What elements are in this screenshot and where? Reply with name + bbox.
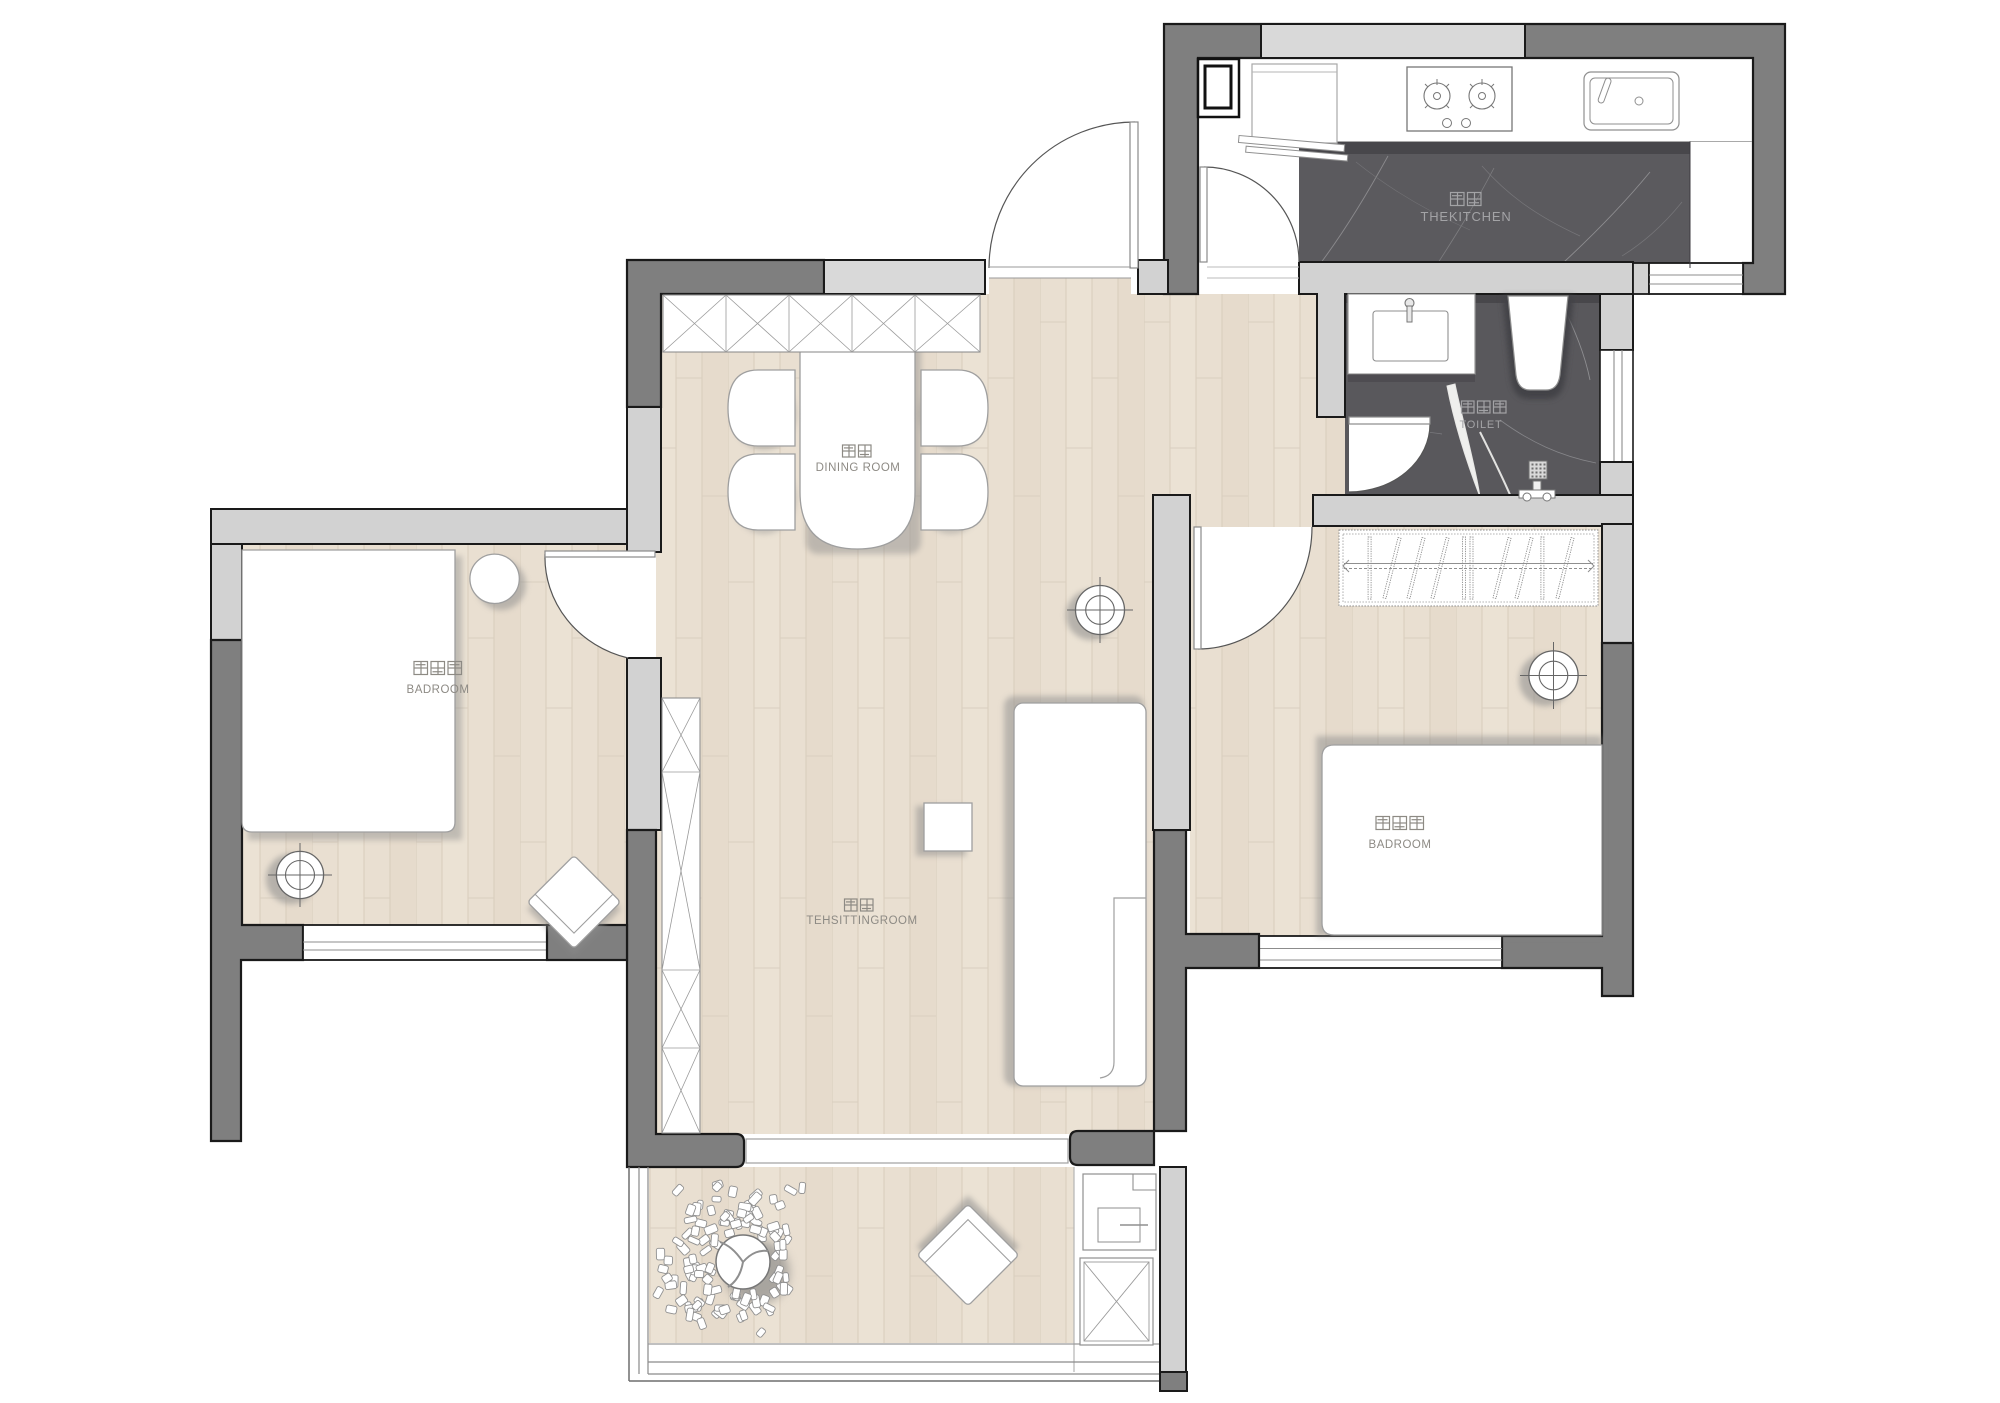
- svg-text:BADROOM: BADROOM: [407, 684, 470, 696]
- svg-text:THEKITCHEN: THEKITCHEN: [1420, 209, 1511, 224]
- svg-text:DINING ROOM: DINING ROOM: [816, 462, 901, 474]
- svg-text:TOILET: TOILET: [1459, 419, 1502, 431]
- svg-text:TEHSITTINGROOM: TEHSITTINGROOM: [806, 915, 917, 927]
- svg-text:BADROOM: BADROOM: [1369, 839, 1432, 851]
